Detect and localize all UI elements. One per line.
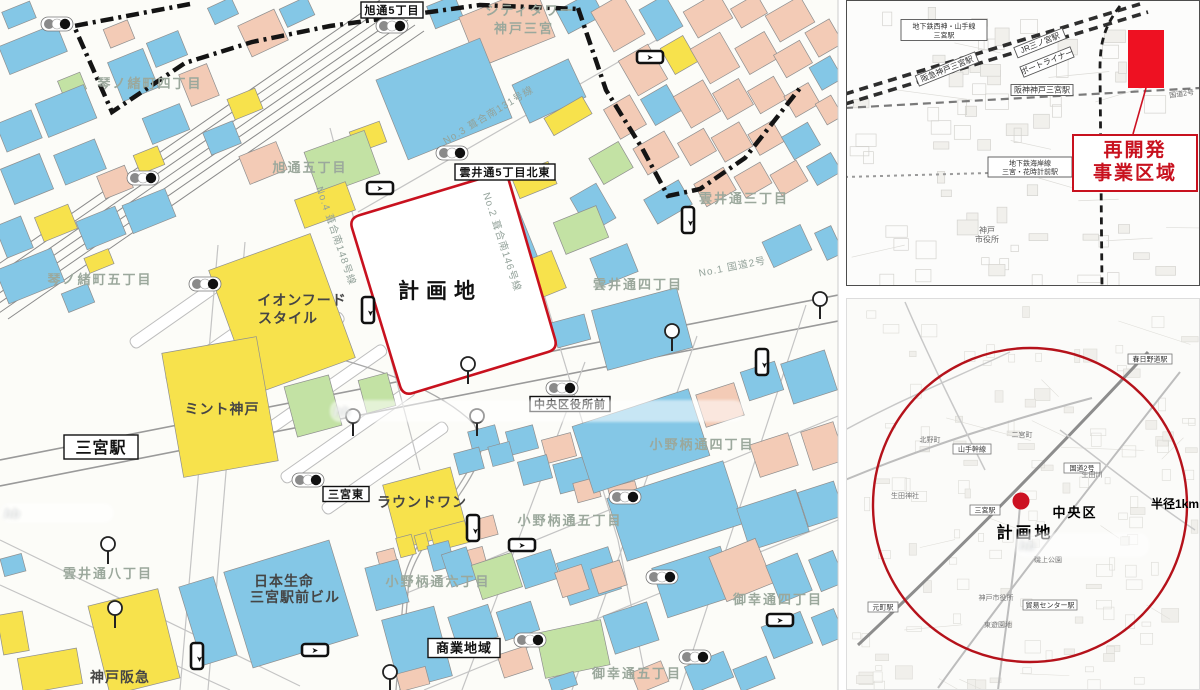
texture-block: [895, 666, 912, 679]
building-label: ミント神戸: [185, 401, 260, 417]
texture-block: [1182, 336, 1199, 341]
texture-block: [1191, 520, 1198, 533]
badge-text: 三宮駅: [934, 30, 955, 39]
station-badge: 地下鉄西神・山手線三宮駅: [901, 20, 987, 41]
bus-stop-icon: ➤: [767, 614, 793, 626]
texture-block: [1086, 584, 1101, 588]
map-shape: [455, 148, 465, 158]
texture-block: [876, 479, 890, 484]
area-label: 小野柄通五丁目: [517, 513, 622, 528]
watermark: hb: [330, 400, 744, 422]
badge-text: 三宮東: [328, 487, 364, 501]
area-label: 雲井通三丁目: [699, 191, 789, 206]
inset-bottom-text: 東遊園地: [984, 620, 1012, 629]
badge-text: 三宮駅: [75, 438, 126, 457]
bus-stop-icon: ➤: [302, 644, 328, 656]
texture-block: [941, 190, 951, 197]
inset-bottom-text: 神戸市役所: [979, 593, 1014, 602]
inset-top-text: 市役所: [975, 234, 999, 244]
bus-arrow: ➤: [760, 362, 769, 369]
bus-arrow: ➤: [777, 616, 784, 625]
plan-site-dot: [1013, 493, 1030, 510]
texture-block: [964, 460, 978, 465]
bus-arrow: ➤: [647, 53, 654, 62]
map-shape: [108, 601, 122, 615]
badge-text: 山手幹線: [958, 445, 986, 454]
bus-stop-icon: ➤: [756, 349, 769, 375]
traffic-signal-icon: [646, 570, 678, 584]
area-label: 旭通五丁目: [271, 160, 347, 175]
texture-block: [1104, 30, 1125, 43]
badge-text: 商業地域: [436, 641, 492, 656]
texture-block: [957, 220, 978, 235]
texture-block: [1162, 609, 1179, 623]
building-label: イオンフード: [257, 292, 347, 308]
bus-stop-icon: ➤: [362, 297, 375, 323]
station-badge: 元町駅: [868, 602, 898, 612]
map-shape: [665, 324, 679, 338]
texture-block: [949, 72, 963, 87]
map-badge: 雲井通5丁目北東: [455, 164, 555, 180]
texture-block: [1034, 389, 1050, 401]
station-badge: 貿易センター駅: [1023, 600, 1077, 610]
building-label: 日本生命: [254, 573, 314, 589]
map-shape: [146, 173, 156, 183]
map-badge: 三宮東: [323, 487, 369, 502]
texture-block: [1185, 448, 1197, 453]
map-shape: [565, 383, 575, 393]
texture-block: [1025, 399, 1035, 407]
traffic-signal-icon: [679, 650, 711, 664]
traffic-signal-icon: [292, 473, 324, 487]
bus-arrow: ➤: [195, 656, 204, 663]
bus-arrow: ➤: [312, 646, 319, 655]
map-shape: [665, 572, 675, 582]
area-label: 雲井通八丁目: [63, 566, 153, 581]
inset-bottom: 春日野道駅山手幹線国道2号三宮駅元町駅貿易センター駅生田神社北野町二宮町磯上公園…: [845, 298, 1200, 690]
traffic-signal-icon: [376, 19, 408, 33]
texture-block: [1130, 508, 1145, 515]
texture-block: [1133, 253, 1149, 260]
texture-block: [1146, 420, 1157, 429]
area-label: 小野柄通六丁目: [385, 574, 490, 589]
map-shape: [533, 635, 543, 645]
building-label: 三宮駅前ビル: [250, 589, 340, 605]
redevelopment-area-rect: [1128, 30, 1164, 88]
watermark: hb: [0, 503, 114, 523]
inset-bottom-text: 生田神社: [891, 491, 919, 500]
texture-block: [1106, 646, 1114, 653]
texture-block: [1018, 443, 1034, 449]
texture-block: [856, 676, 873, 684]
map-shape: [461, 357, 475, 371]
texture-block: [1027, 185, 1037, 196]
badge-text: 地下鉄海岸線: [1009, 159, 1051, 168]
texture-block: [1029, 234, 1048, 241]
texture-block: [975, 680, 986, 690]
badge-text: 三宮駅: [975, 506, 996, 515]
texture-block: [1034, 114, 1050, 128]
area-label: 琴ノ緒町五丁目: [47, 272, 152, 287]
map-badge: 三宮駅: [64, 435, 138, 459]
area-label: シティタワー: [485, 3, 574, 18]
badge-text: 阪神神戸三宮駅: [1014, 85, 1070, 95]
texture-block: [909, 543, 916, 555]
map-page: No.3 葺合南131号線No.4 葺合南148号線No.2 葺合南146号線N…: [0, 0, 1200, 690]
station-badge: 三宮駅: [970, 505, 1000, 515]
area-label: 琴ノ緒町四丁目: [97, 76, 202, 91]
map-shape: [60, 19, 70, 29]
map-shape: [208, 279, 218, 289]
bus-arrow: ➤: [366, 310, 375, 317]
texture-block: [1063, 483, 1070, 493]
texture-block: [1083, 234, 1098, 240]
inset-bottom-text: 二宮町: [1012, 430, 1033, 439]
traffic-signal-icon: [127, 171, 159, 185]
badge-text: 三宮・花時計前駅: [1002, 167, 1058, 176]
area-label: 神戸三宮: [494, 21, 554, 36]
station-badge: 阪神神戸三宮駅: [1011, 85, 1073, 96]
traffic-signal-icon: [436, 146, 468, 160]
bus-stop-icon: ➤: [191, 643, 204, 669]
traffic-signal-icon: [609, 490, 641, 504]
bus-stop-icon: ➤: [637, 51, 663, 63]
bus-arrow: ➤: [519, 541, 526, 550]
badge-text: 春日野道駅: [1133, 355, 1168, 364]
texture-block: [965, 106, 976, 116]
texture-block: [1103, 654, 1114, 662]
inset-bottom-text: 北野町: [920, 436, 941, 444]
texture-block: [875, 654, 888, 661]
area-label: 小野柄通四丁目: [649, 437, 754, 452]
bus-arrow: ➤: [377, 184, 384, 193]
texture-block: [1064, 649, 1075, 655]
texture-block: [995, 391, 1003, 402]
area-label: 御幸通五丁目: [591, 666, 682, 681]
watermark: hb: [1015, 533, 1149, 557]
map-badge: 旭通5丁目: [361, 2, 423, 18]
badge-text: 雲井通5丁目北東: [459, 165, 550, 179]
map-shape: [698, 652, 708, 662]
texture-block: [1119, 62, 1127, 74]
texture-block: [978, 140, 991, 151]
building-label: 神戸阪急: [90, 669, 150, 685]
inset-top-text: 神戸: [979, 225, 995, 235]
bus-arrow: ➤: [471, 528, 480, 535]
badge-text: 貿易センター駅: [1026, 601, 1075, 610]
station-badge: 春日野道駅: [1128, 354, 1172, 364]
texture-block: [934, 142, 949, 149]
texture-block: [910, 351, 917, 356]
texture-block: [1118, 225, 1129, 234]
inset-top: 地下鉄西神・山手線三宮駅JR三ノ宮駅ポートライナー阪急神戸三宮駅阪神神戸三宮駅地…: [845, 0, 1200, 289]
bus-arrow: ➤: [686, 220, 695, 227]
traffic-signal-icon: [546, 381, 578, 395]
texture-block: [1156, 266, 1176, 275]
badge-text: 元町駅: [873, 604, 894, 612]
traffic-signal-icon: [189, 277, 221, 291]
map-shape: [628, 492, 638, 502]
bus-stop-icon: ➤: [367, 182, 393, 194]
building-label: スタイル: [258, 310, 318, 326]
inset-bottom-text: 生田川: [1082, 470, 1103, 479]
texture-block: [980, 64, 1000, 76]
texture-block: [1064, 407, 1073, 413]
map-shape: [813, 292, 827, 306]
area-label: 雲井通四丁目: [593, 277, 683, 292]
map-shape: [395, 21, 405, 31]
texture-block: [1023, 306, 1030, 317]
map-canvas: No.3 葺合南131号線No.4 葺合南148号線No.2 葺合南146号線N…: [0, 0, 1200, 690]
texture-block: [989, 264, 1005, 275]
texture-block: [937, 171, 944, 183]
traffic-signal-icon: [514, 633, 546, 647]
traffic-signal-icon: [41, 17, 73, 31]
texture-block: [1006, 124, 1028, 136]
area-label: 御幸通四丁目: [732, 592, 823, 607]
station-badge: 地下鉄海岸線三宮・花時計前駅: [988, 157, 1072, 177]
texture-block: [997, 207, 1007, 223]
badge-text: 地下鉄西神・山手線: [913, 21, 976, 30]
badge-text: 旭通5丁目: [363, 3, 419, 17]
bus-stop-icon: ➤: [467, 515, 480, 541]
station-badge: 山手幹線: [953, 444, 991, 454]
map-shape: [383, 665, 397, 679]
bus-stop-icon: ➤: [509, 539, 535, 551]
map-badge: 商業地域: [428, 639, 500, 658]
building-label: ラウンドワン: [377, 494, 467, 510]
map-shape: [101, 537, 115, 551]
texture-block: [933, 55, 945, 62]
main-map: No.3 葺合南131号線No.4 葺合南148号線No.2 葺合南146号線N…: [0, 0, 845, 690]
bus-stop-icon: ➤: [682, 207, 695, 233]
texture-block: [1075, 617, 1083, 623]
map-shape: [311, 475, 321, 485]
texture-block: [965, 489, 970, 498]
